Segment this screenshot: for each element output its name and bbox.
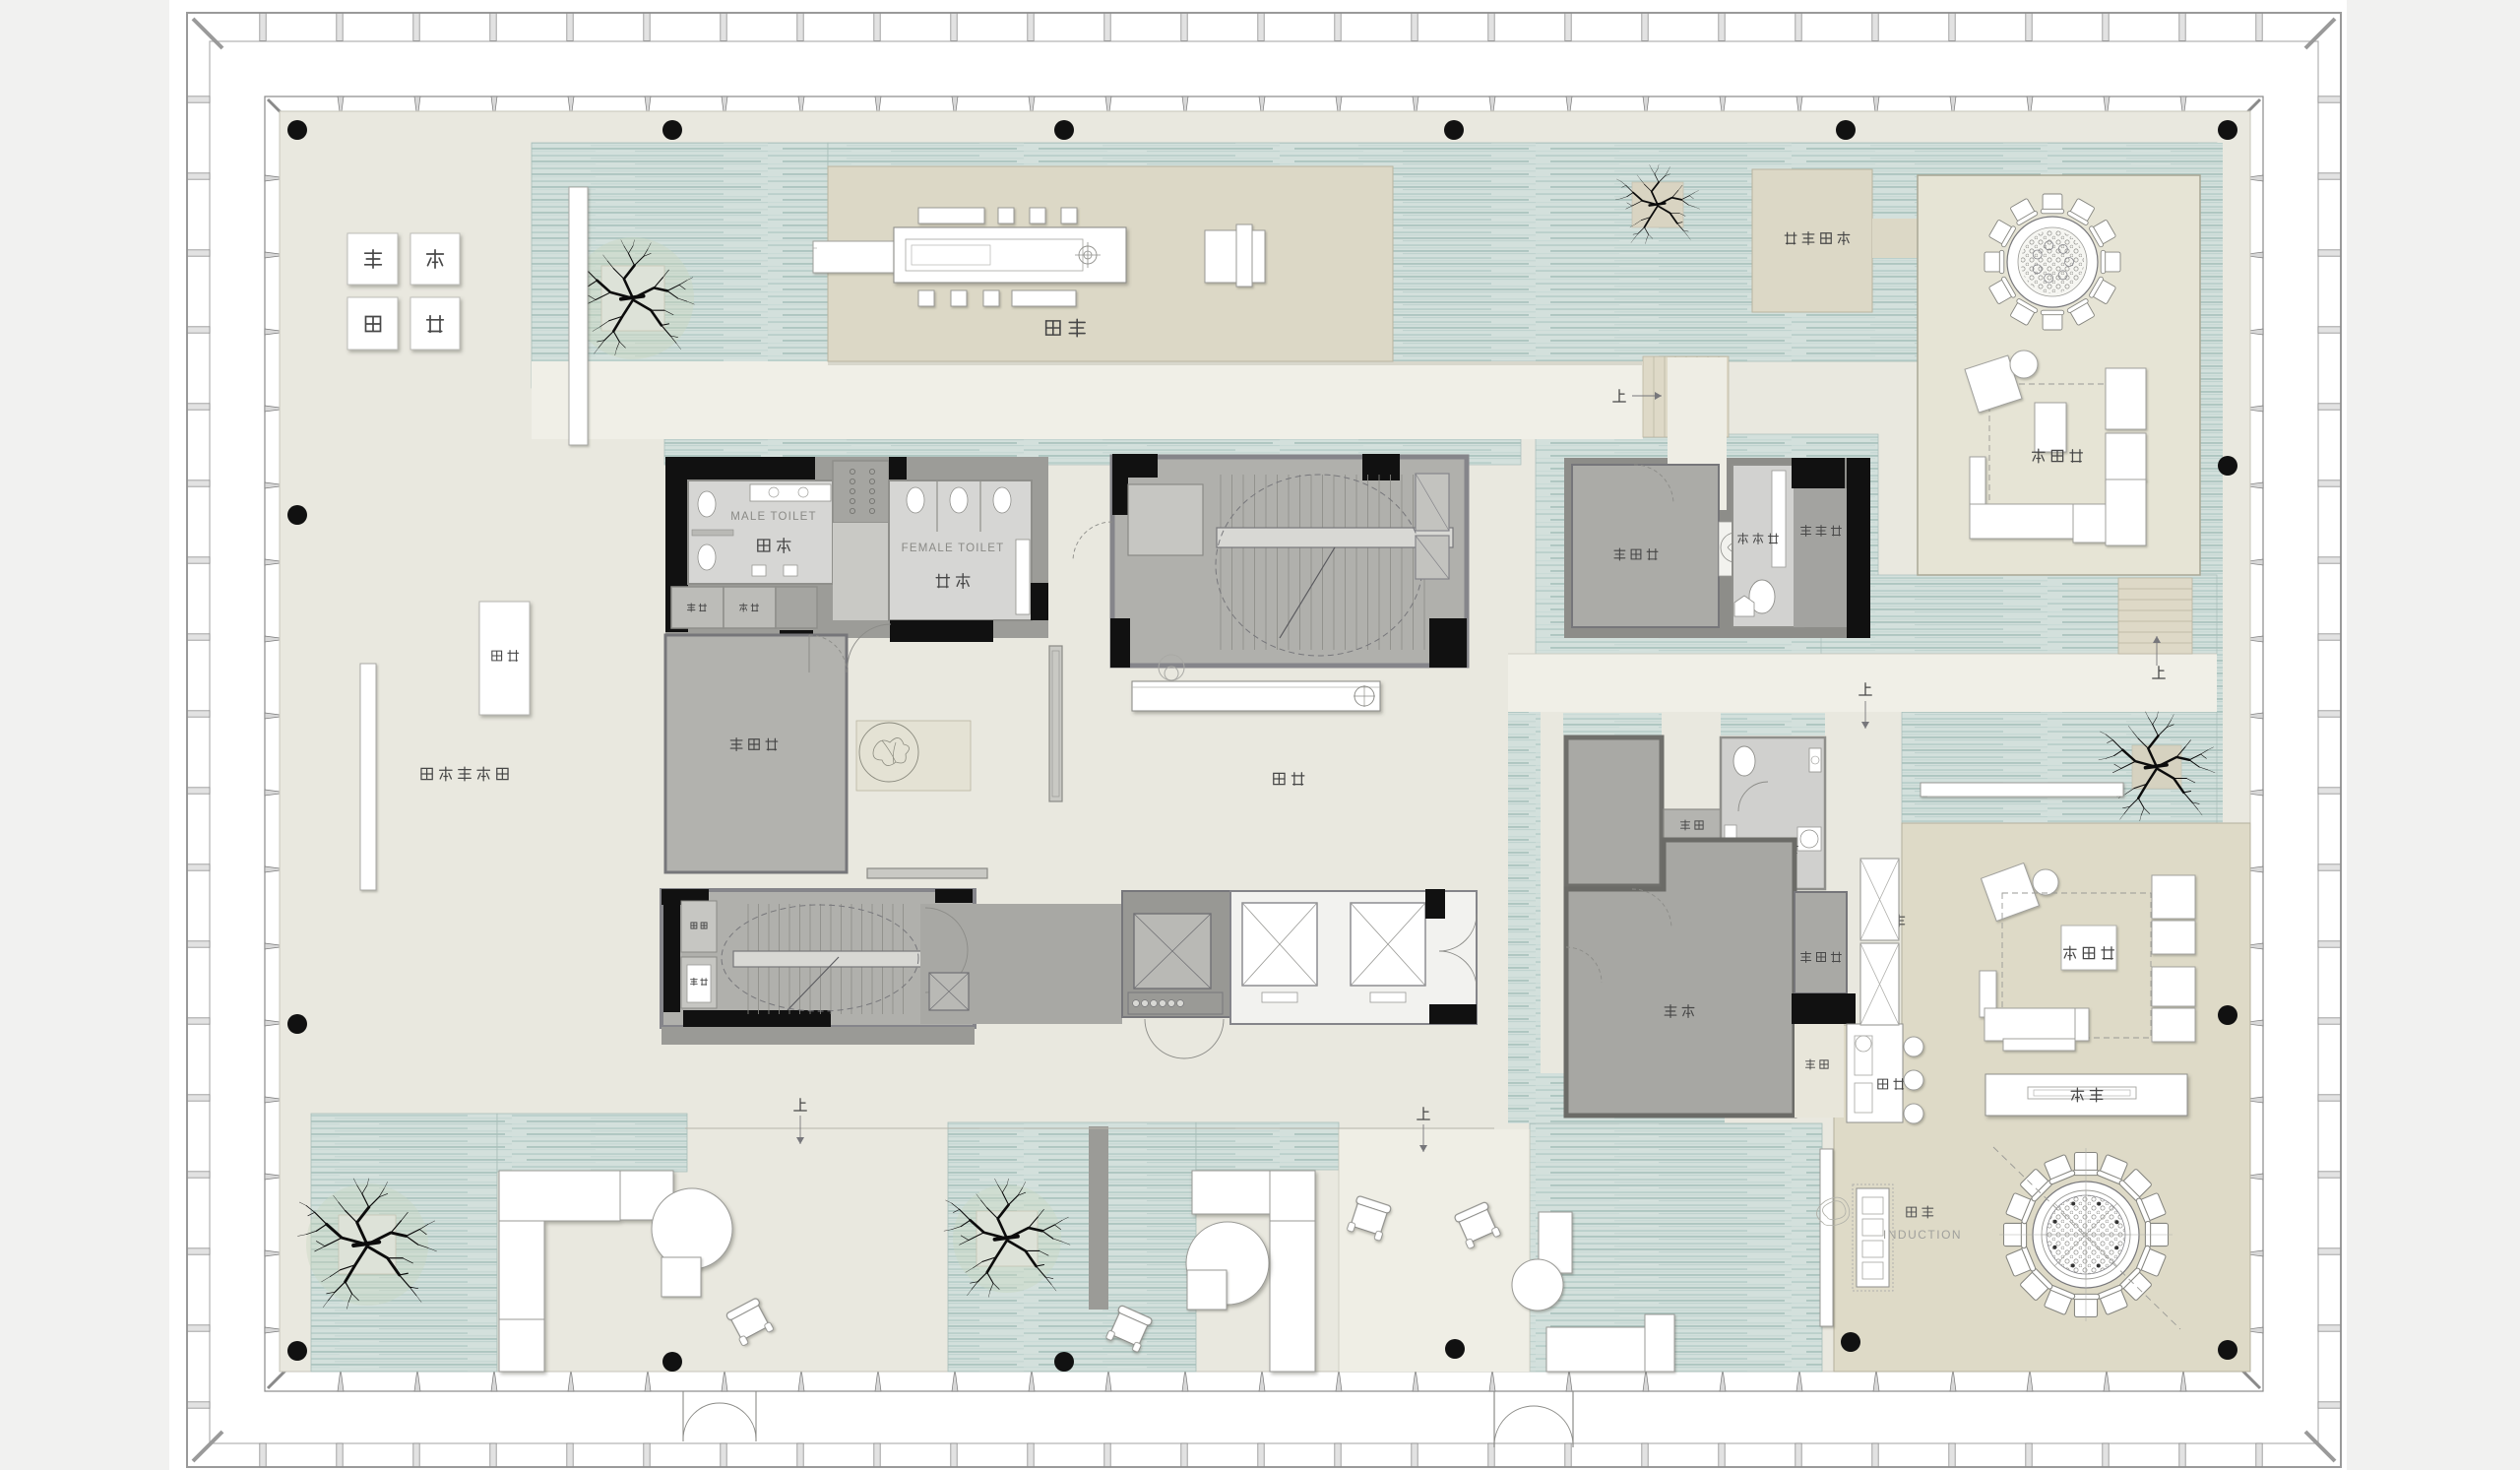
svg-text:FEMALE TOILET: FEMALE TOILET	[902, 543, 1005, 554]
svg-text:MALE TOILET: MALE TOILET	[730, 511, 817, 523]
svg-text:INDUCTION: INDUCTION	[1883, 1228, 1962, 1242]
